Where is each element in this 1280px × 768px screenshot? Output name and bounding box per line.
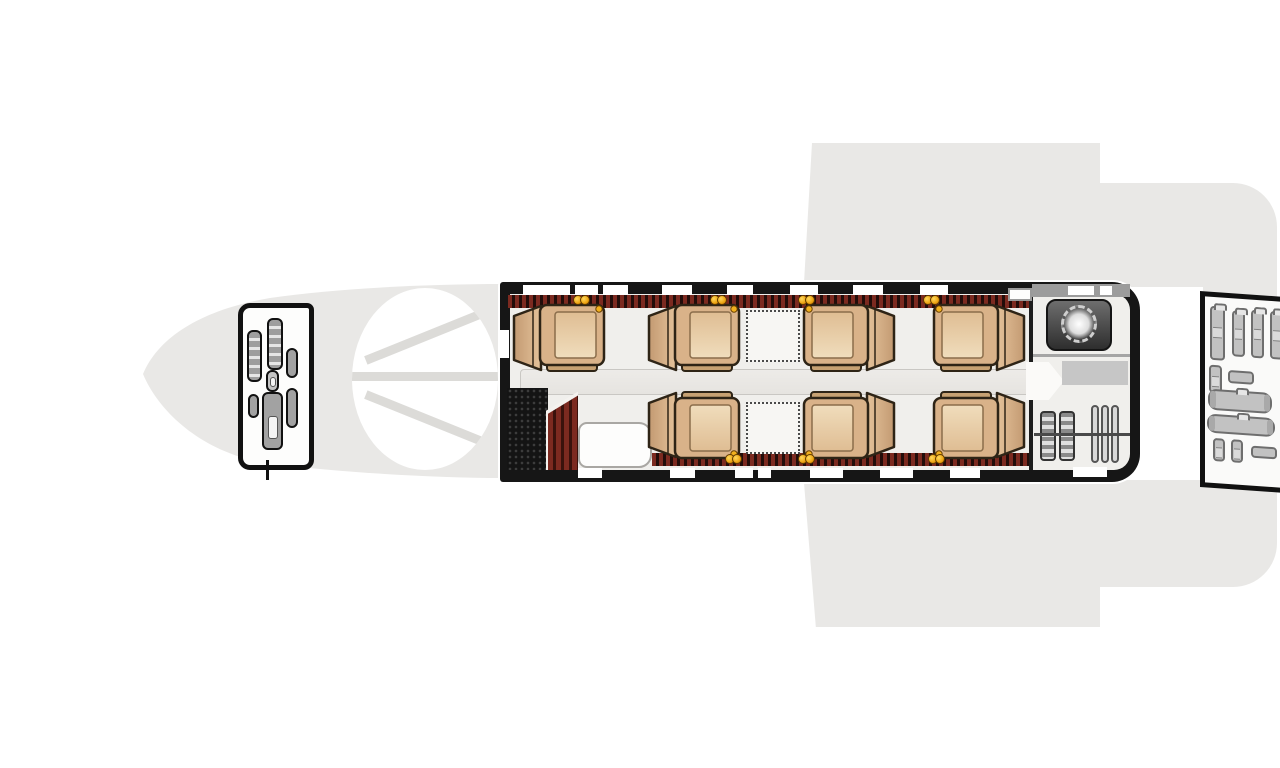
cabin-window (920, 285, 948, 295)
cabin-window (727, 285, 753, 295)
luggage-item (1208, 389, 1272, 414)
luggage-handle (1254, 307, 1267, 315)
antenna-probe (266, 460, 269, 480)
cabin-window (790, 285, 818, 295)
cabin-window (575, 285, 598, 295)
aircraft-floor-plan (0, 0, 1280, 768)
passenger-seat-2 (646, 303, 742, 373)
crew-seat (247, 330, 262, 382)
luggage-band (1216, 447, 1222, 458)
cabin-window (603, 285, 628, 295)
seat-cushion-slot (268, 416, 278, 440)
crew-console (248, 394, 259, 418)
passenger-seat-1 (511, 303, 607, 373)
aft-shelf (1008, 288, 1032, 301)
tail-fairing-top (1100, 183, 1210, 287)
reading-light-pair (728, 454, 746, 464)
reading-light-pair (576, 295, 594, 305)
cabin-window (880, 468, 913, 478)
luggage-handle (1214, 303, 1227, 311)
crew-console (266, 370, 279, 392)
toilet-unit (1046, 299, 1112, 351)
crew-seat (262, 392, 283, 450)
reading-light-pair (801, 454, 819, 464)
duffel-cap (1210, 391, 1216, 408)
cabin-window (735, 468, 753, 478)
windshield-glass (352, 288, 498, 470)
luggage-item (1251, 446, 1277, 460)
cabin-window (662, 285, 692, 295)
reading-light-pair (713, 295, 731, 305)
luggage-band (1234, 449, 1240, 460)
garment-stack (1059, 411, 1075, 461)
luggage-item (1232, 310, 1245, 357)
reading-light (935, 454, 945, 464)
forward-bulkhead-slot (500, 330, 509, 358)
luggage-item (1228, 370, 1254, 385)
luggage-item (1270, 311, 1280, 360)
cabin-window (950, 468, 980, 478)
reading-light-pair (926, 295, 944, 305)
luggage-handle (1237, 413, 1250, 421)
luggage-item (1207, 413, 1275, 437)
entry-bench (578, 422, 652, 468)
luggage-band (1254, 328, 1261, 339)
reading-light (930, 295, 940, 305)
reading-light (717, 295, 727, 305)
duffel-cap (1209, 416, 1215, 431)
crew-seat (267, 318, 283, 370)
luggage-handle (1235, 307, 1248, 315)
passenger-seat-4 (931, 303, 1027, 373)
lav-window (1068, 286, 1094, 295)
wing-bottom (804, 483, 1100, 627)
luggage-band (1212, 376, 1219, 387)
club-table-lower (746, 402, 800, 454)
luggage-handle (1273, 308, 1280, 316)
reading-light-pair (801, 295, 819, 305)
reading-light (732, 454, 742, 464)
duffel-cap (1264, 394, 1270, 411)
wardrobe-rod (1034, 433, 1130, 436)
duffel-cap (1267, 420, 1273, 435)
luggage-item (1210, 306, 1225, 361)
windshield-frame-bar (352, 372, 498, 381)
passenger-seat-7 (931, 390, 1027, 460)
baggage-compartment (1200, 291, 1280, 494)
reading-light (580, 295, 590, 305)
reading-light (805, 454, 815, 464)
luggage-band (1235, 328, 1242, 339)
cabin-window (670, 468, 695, 478)
cabin-window (578, 468, 602, 478)
vanity-counter (1062, 361, 1128, 385)
forward-galley-unit (507, 388, 548, 470)
lav-window (1073, 467, 1107, 477)
crew-console (286, 388, 298, 428)
cabin-window (523, 285, 570, 295)
lav-divider (1033, 354, 1130, 357)
luggage-item (1251, 310, 1264, 359)
toilet-seat (1061, 305, 1097, 343)
reading-light-pair (931, 454, 949, 464)
cabin-window (810, 468, 843, 478)
cabin-window (758, 468, 771, 478)
passenger-seat-5 (646, 390, 742, 460)
garment-stack (1040, 411, 1056, 461)
seat-cushion-slot (270, 377, 276, 387)
tail-fairing-bottom (1100, 480, 1210, 587)
luggage-band (1213, 327, 1222, 339)
cockpit-panel (238, 303, 314, 470)
club-table-upper (746, 310, 800, 362)
passenger-seat-6 (801, 390, 897, 460)
luggage-item (1231, 439, 1243, 463)
reading-light (805, 295, 815, 305)
lav-partition-wall (1029, 400, 1033, 470)
luggage-handle (1236, 388, 1249, 396)
luggage-band (1273, 330, 1280, 341)
passenger-seat-3 (801, 303, 897, 373)
luggage-item (1213, 438, 1225, 462)
lav-window (1100, 286, 1112, 295)
wing-top (804, 143, 1100, 283)
cabin-window (853, 285, 883, 295)
crew-console (286, 348, 298, 378)
